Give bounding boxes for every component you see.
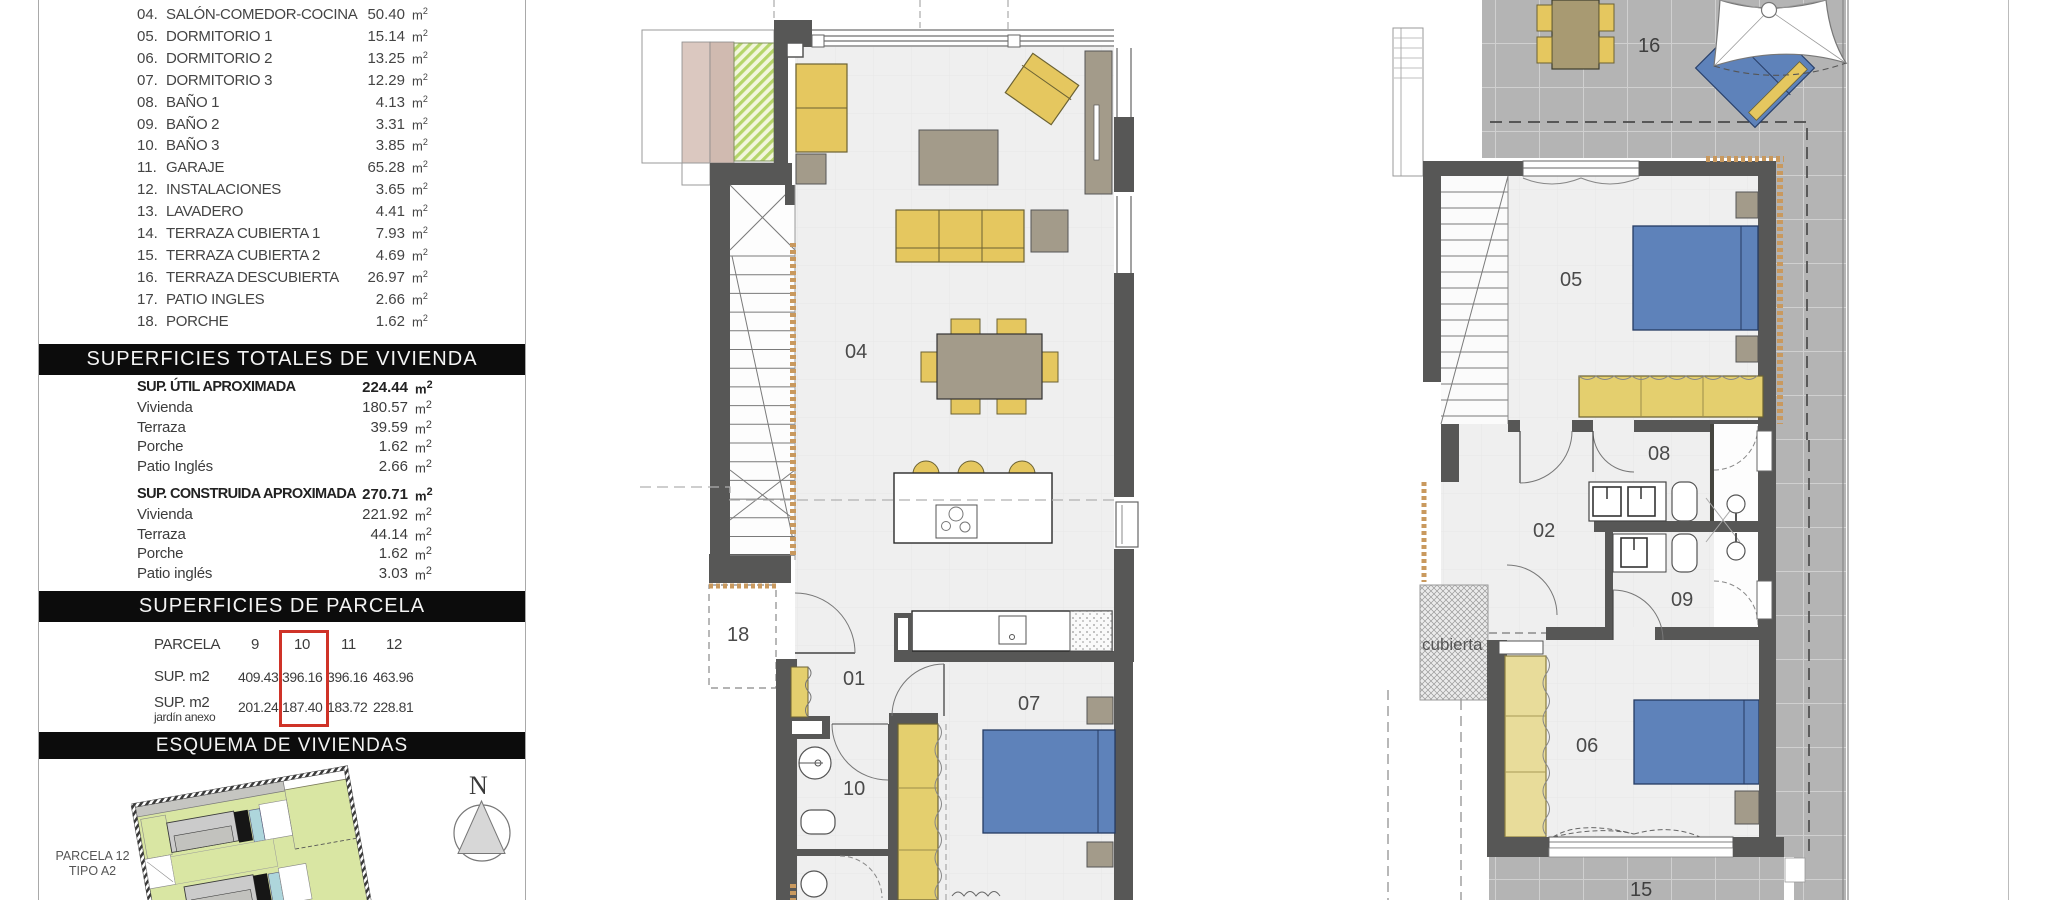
svg-text:08: 08: [1648, 443, 1670, 465]
svg-text:N: N: [469, 771, 488, 800]
svg-text:04: 04: [845, 341, 867, 363]
svg-text:05: 05: [1560, 269, 1582, 291]
svg-text:06: 06: [1576, 735, 1598, 757]
svg-text:15: 15: [1630, 879, 1652, 900]
svg-text:10: 10: [843, 778, 865, 800]
svg-text:09: 09: [1671, 589, 1693, 611]
svg-text:07: 07: [1018, 693, 1040, 715]
svg-text:cubierta: cubierta: [1422, 635, 1483, 654]
svg-text:02: 02: [1533, 520, 1555, 542]
svg-text:01: 01: [843, 668, 865, 690]
svg-text:18: 18: [727, 624, 749, 646]
svg-text:16: 16: [1638, 35, 1660, 57]
